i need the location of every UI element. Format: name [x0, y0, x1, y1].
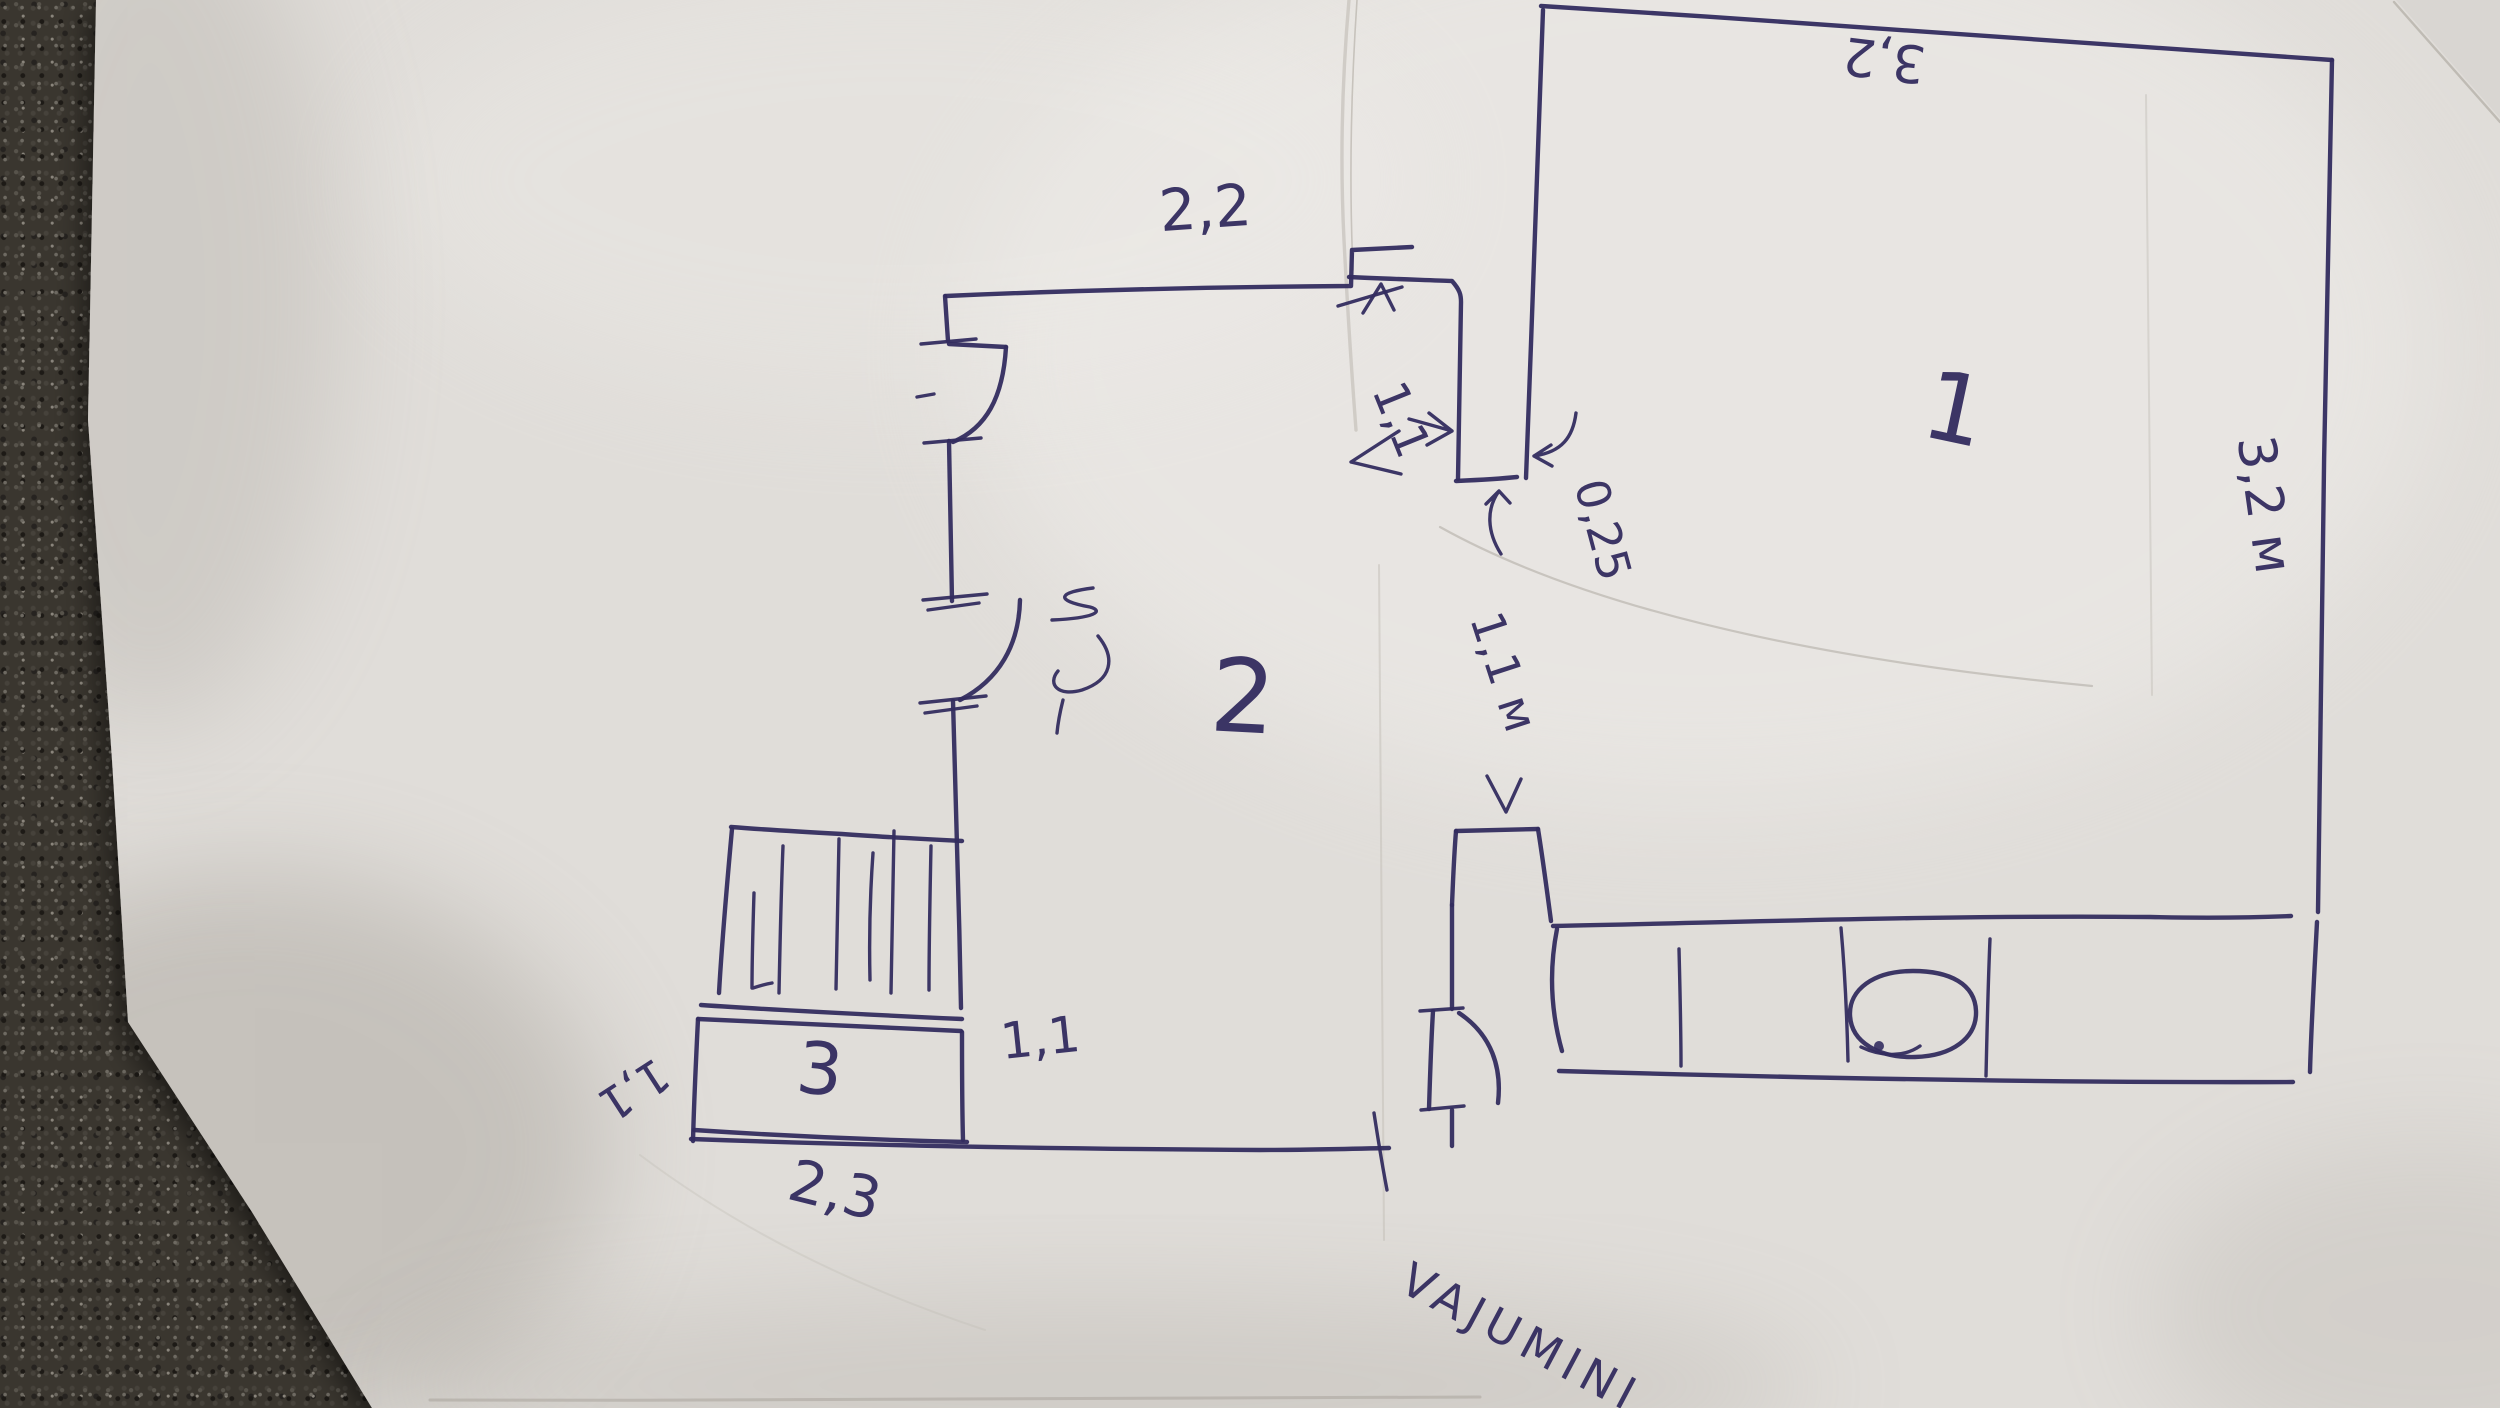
dim-room2-bottom: 1,1 — [998, 1005, 1083, 1071]
room-3-label: 3 — [793, 1025, 847, 1113]
dim-room1-top-width: 3,2 — [1840, 24, 1929, 94]
sink-drain — [1874, 1041, 1884, 1051]
photo-of-floor-plan-sketch: 2,2 3,2 3,2 м 1,1 0,25 1,1 м 1 2 3 1,1 2… — [0, 0, 2500, 1408]
room-2-label: 2 — [1208, 636, 1279, 758]
dim-hall-top-width: 2,2 — [1157, 171, 1254, 245]
floor-plan-sketch: 2,2 3,2 3,2 м 1,1 0,25 1,1 м 1 2 3 1,1 2… — [0, 0, 2500, 1408]
